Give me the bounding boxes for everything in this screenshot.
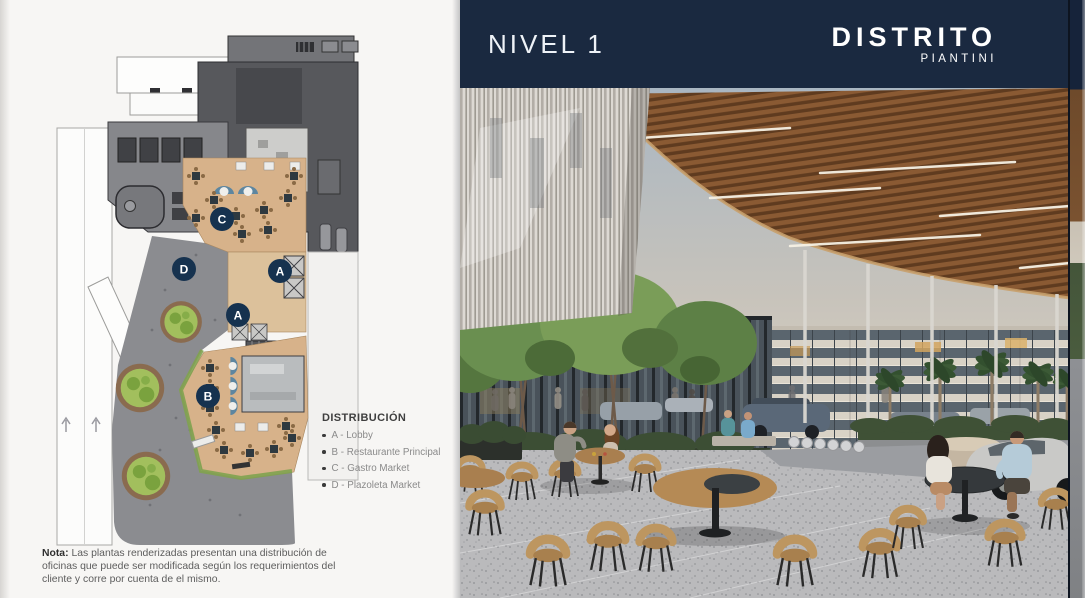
floor-plan-page: C D A A B: [0, 0, 460, 598]
plan-restaurant-zone: [181, 336, 308, 479]
plaza-rendering-art: [460, 88, 1070, 598]
page-edge: [1068, 0, 1085, 598]
legend-item-plazoleta: D - Plazoleta Market: [322, 480, 452, 491]
bullet-icon: [322, 483, 326, 487]
brand-name: DISTRITO: [831, 24, 997, 51]
legend-item-lobby: A - Lobby: [322, 430, 452, 441]
floor-plan: C D A A B: [0, 0, 460, 598]
plan-marker-d: D: [172, 257, 196, 281]
plaza-rendering: [460, 88, 1070, 598]
plan-gastro-zone: [183, 158, 306, 252]
brand-logo: DISTRITO PIANTINI: [831, 24, 997, 65]
svg-text:A: A: [234, 309, 243, 323]
plan-marker-b: B: [196, 384, 220, 408]
note-label: Nota:: [42, 548, 69, 559]
brochure-spread: C D A A B: [0, 0, 1085, 598]
plan-marker-c: C: [210, 207, 234, 231]
svg-text:B: B: [204, 390, 213, 404]
svg-text:C: C: [218, 213, 227, 227]
legend-title: DISTRIBUCIÓN: [322, 412, 452, 424]
legend-item-restaurante: B - Restaurante Principal: [322, 447, 452, 458]
bullet-icon: [322, 450, 326, 454]
fin-building: [460, 88, 650, 330]
slide-header: NIVEL 1 DISTRITO PIANTINI: [460, 0, 1085, 88]
plan-marker-a1: A: [268, 259, 292, 283]
bullet-icon: [322, 434, 326, 438]
plan-marker-a2: A: [226, 303, 250, 327]
rendering-page: NIVEL 1 DISTRITO PIANTINI: [460, 0, 1085, 598]
note-text: Las plantas renderizadas presentan una d…: [42, 548, 335, 585]
svg-text:A: A: [276, 265, 285, 279]
svg-text:D: D: [180, 263, 189, 277]
plan-legend: DISTRIBUCIÓN A - Lobby B - Restaurante P…: [322, 412, 452, 496]
bullet-icon: [322, 467, 326, 471]
disclaimer-note: Nota: Las plantas renderizadas presentan…: [42, 547, 350, 586]
brand-subtitle: PIANTINI: [831, 53, 997, 65]
legend-item-gastro: C - Gastro Market: [322, 463, 452, 474]
page-title: NIVEL 1: [488, 29, 605, 60]
